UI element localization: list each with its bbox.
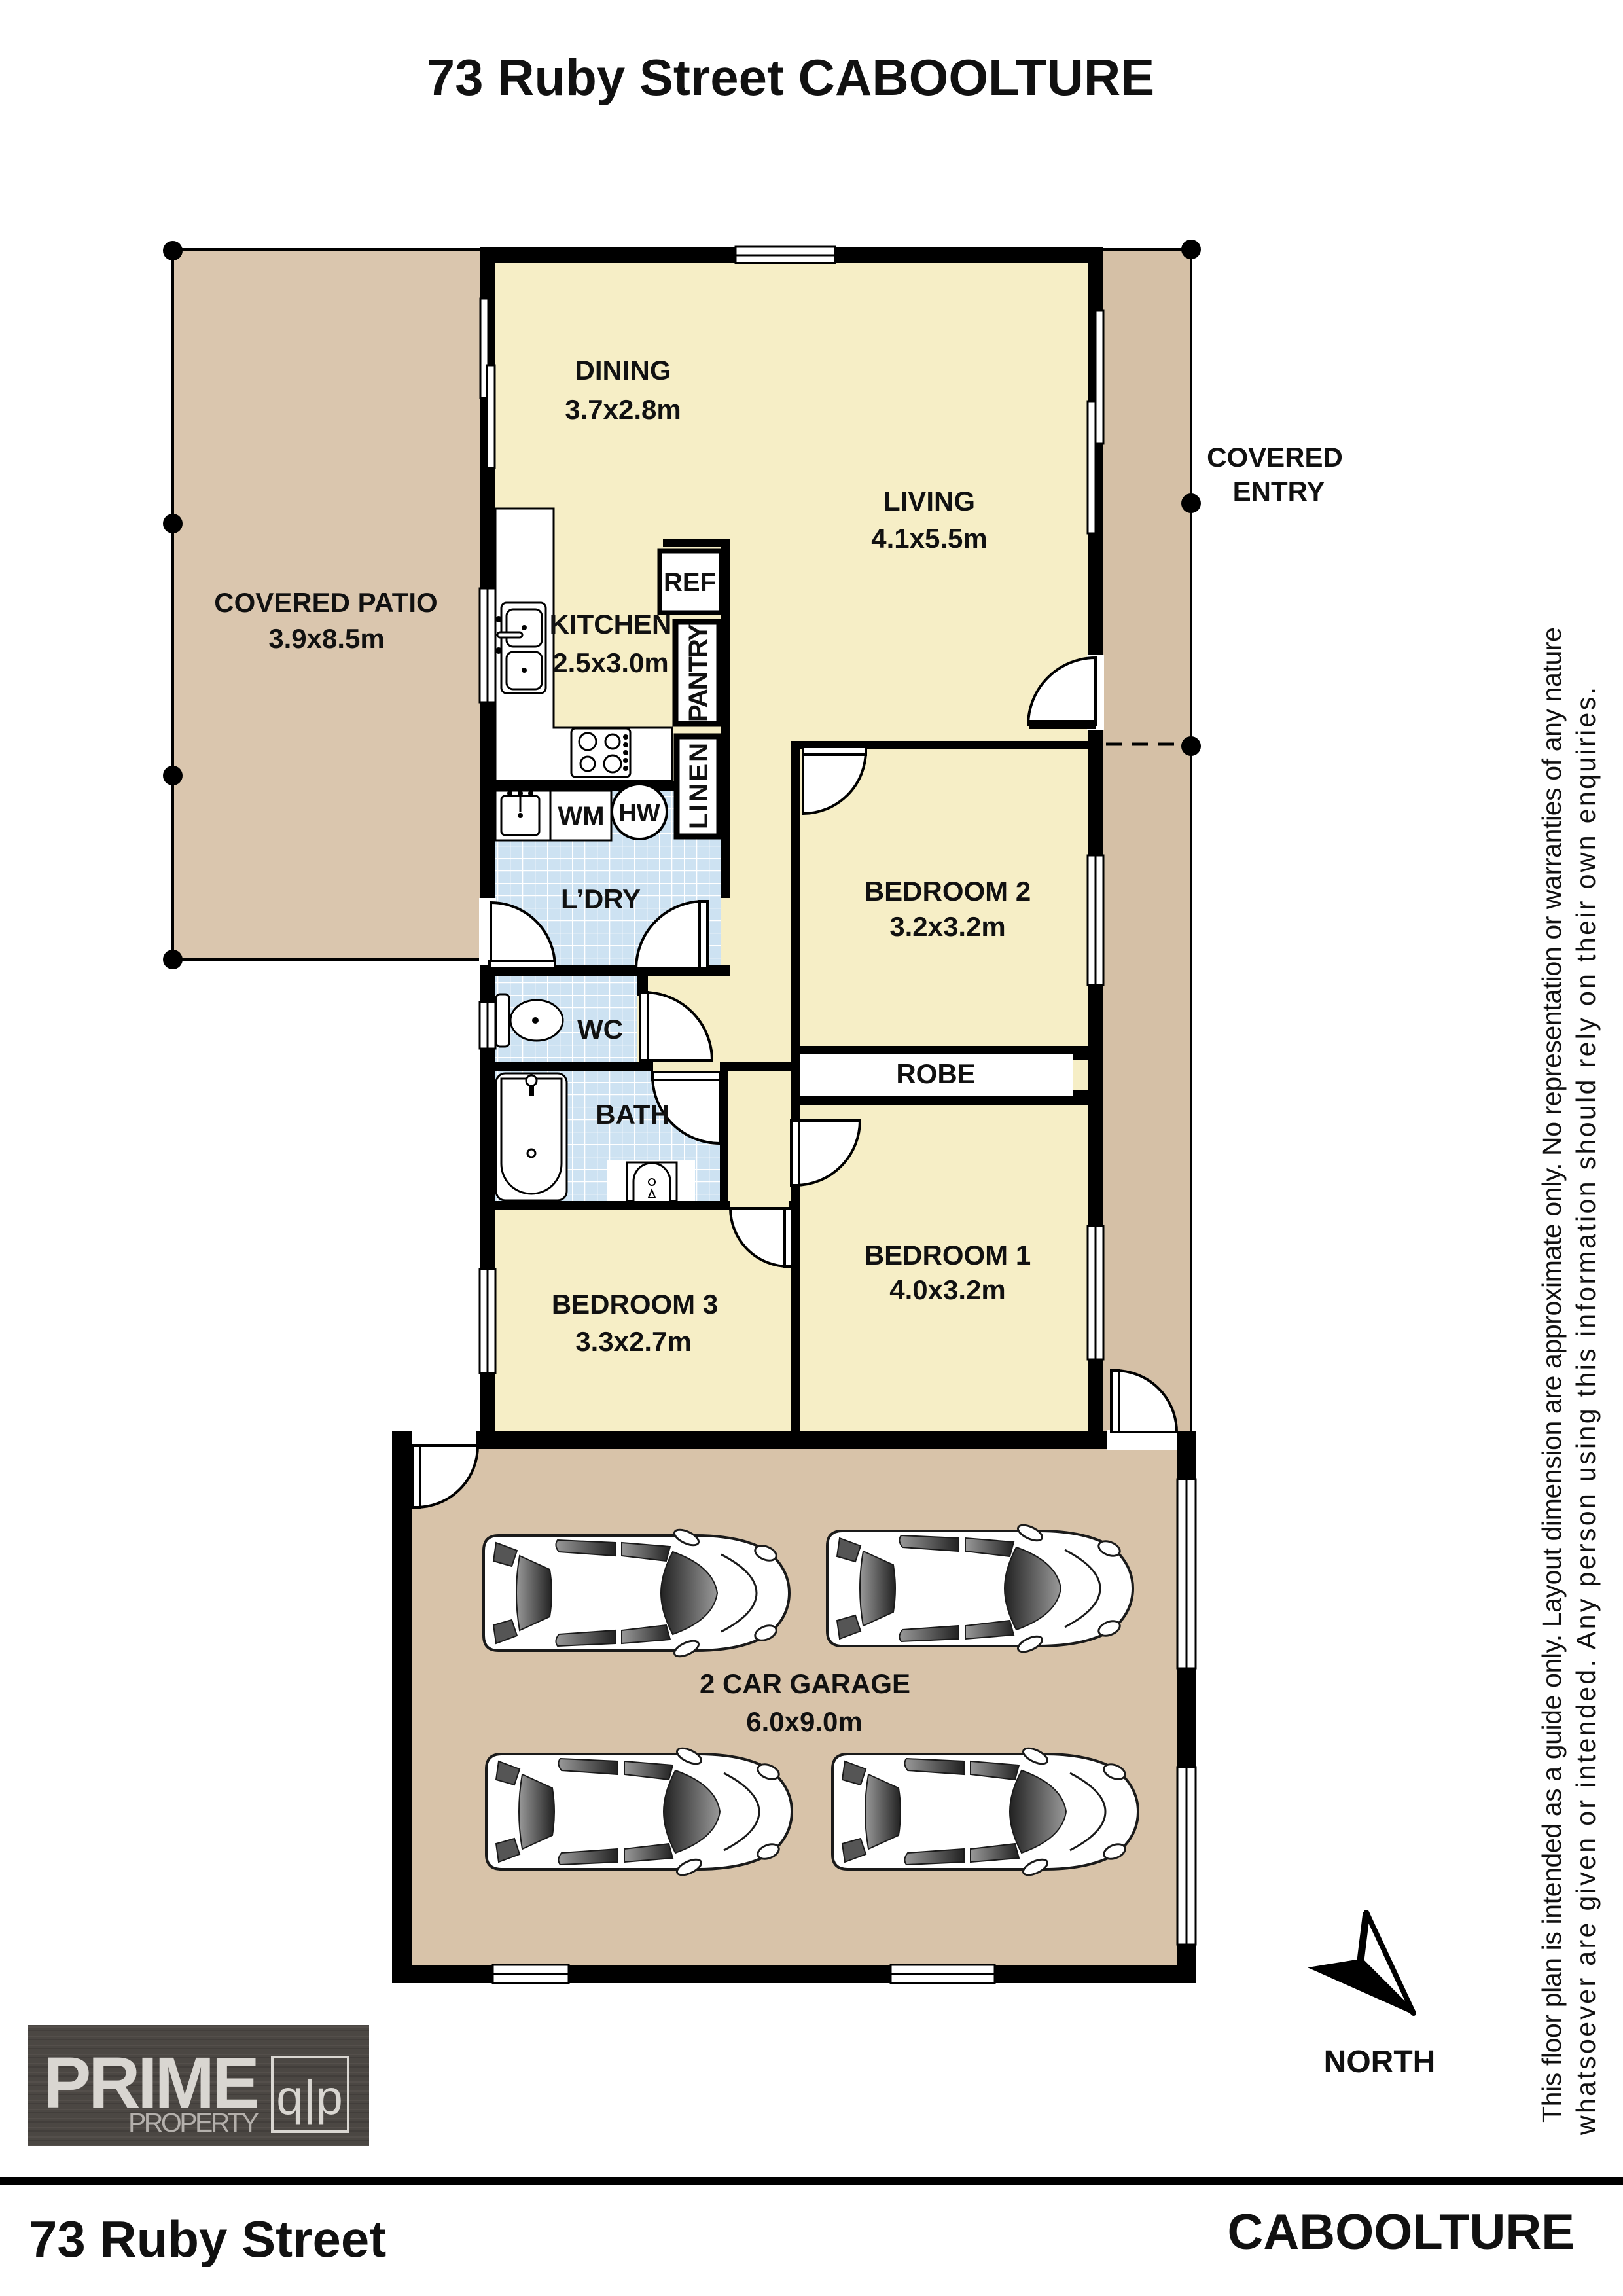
svg-text:BEDROOM 1: BEDROOM 1 xyxy=(865,1240,1031,1270)
svg-text:ENTRY: ENTRY xyxy=(1233,476,1325,507)
svg-text:whatsoever are given or intend: whatsoever are given or intended. Any pe… xyxy=(1571,687,1601,2136)
svg-text:3.7x2.8m: 3.7x2.8m xyxy=(565,394,681,425)
svg-text:73 Ruby Street CABOOLTURE: 73 Ruby Street CABOOLTURE xyxy=(427,48,1154,106)
svg-text:DINING: DINING xyxy=(575,355,671,386)
svg-text:NORTH: NORTH xyxy=(1324,2045,1436,2079)
svg-text:HW: HW xyxy=(618,800,660,827)
svg-text:L’DRY: L’DRY xyxy=(561,884,641,914)
svg-text:PROPERTY: PROPERTY xyxy=(128,2108,259,2138)
svg-text:2 CAR GARAGE: 2 CAR GARAGE xyxy=(700,1668,910,1699)
svg-text:LINEN: LINEN xyxy=(685,743,713,829)
svg-text:3.2x3.2m: 3.2x3.2m xyxy=(889,911,1005,942)
svg-text:REF: REF xyxy=(664,568,716,597)
svg-text:3.9x8.5m: 3.9x8.5m xyxy=(268,623,384,654)
svg-text:CABOOLTURE: CABOOLTURE xyxy=(1227,2204,1575,2260)
svg-text:BEDROOM 2: BEDROOM 2 xyxy=(865,876,1031,906)
svg-text:BEDROOM 3: BEDROOM 3 xyxy=(552,1289,718,1319)
svg-text:4.0x3.2m: 4.0x3.2m xyxy=(889,1274,1005,1305)
svg-text:KITCHEN: KITCHEN xyxy=(550,609,672,639)
svg-text:LIVING: LIVING xyxy=(883,486,975,516)
svg-text:4.1x5.5m: 4.1x5.5m xyxy=(871,523,987,554)
svg-text:2.5x3.0m: 2.5x3.0m xyxy=(552,647,668,678)
svg-text:WM: WM xyxy=(558,802,604,831)
svg-text:ROBE: ROBE xyxy=(896,1058,975,1089)
svg-text:COVERED PATIO: COVERED PATIO xyxy=(214,587,437,618)
svg-text:6.0x9.0m: 6.0x9.0m xyxy=(746,1706,862,1737)
svg-text:73 Ruby Street: 73 Ruby Street xyxy=(29,2210,386,2268)
svg-text:This floor plan is intended as: This floor plan is intended as a guide o… xyxy=(1537,627,1567,2123)
svg-text:PANTRY: PANTRY xyxy=(684,624,713,722)
svg-text:BATH: BATH xyxy=(596,1099,670,1130)
svg-text:q|p: q|p xyxy=(276,2070,343,2125)
svg-text:COVERED: COVERED xyxy=(1207,442,1343,473)
svg-text:3.3x2.7m: 3.3x2.7m xyxy=(575,1326,691,1357)
svg-text:WC: WC xyxy=(577,1014,623,1045)
